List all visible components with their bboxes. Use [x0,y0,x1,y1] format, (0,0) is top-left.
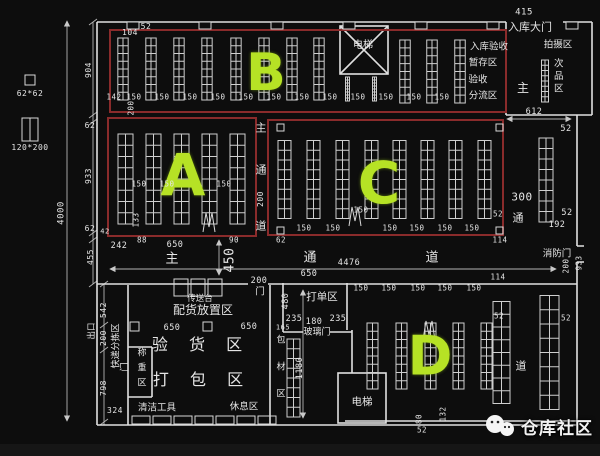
label-v-aisle-tong: 通 [256,165,267,176]
label-allocation-area: 配货放置区 [173,304,233,316]
legend-rack-size: 120*200 [11,144,48,152]
dim-52-d1: 52 [494,312,504,320]
dim-200-va: 200 [257,191,265,207]
label-weigh-door: 门 [122,362,131,371]
label-defective-area: 次品区 [552,58,562,96]
label-order-printing-area: 打单区 [306,292,338,303]
dim-142: 142 [106,93,121,101]
dim-200-left: 200 [100,330,108,346]
label-elevator-bottom: 电梯 [352,397,373,408]
c-150-1: 150 [296,224,311,232]
dim-165: 165 [276,325,290,332]
b-150-10: 150 [378,93,393,101]
dim-114-c: 114 [492,236,507,244]
dim-324: 324 [107,407,123,415]
dim-192: 192 [549,221,566,230]
dim-798: 798 [100,380,108,396]
label-weighing-area: 称重区 [136,348,145,393]
dim-88: 88 [137,236,147,244]
label-door-main: 门 [255,287,265,297]
dim-933-r: 933 [575,255,583,270]
label-elevator-top: 电梯 [353,41,373,51]
label-right-aisle-tong: 通 [513,213,524,224]
watermark-text: 仓库社区 [521,414,593,439]
label-main-aisle-dao: 道 [425,252,438,265]
label-v-aisle-dao: 道 [256,221,267,232]
watermark: 仓库社区 [484,413,593,439]
c-150-2: 150 [325,224,340,232]
dim-650-b2: 650 [241,323,258,332]
label-layer: 62*62120*2004000904629336245554220079832… [0,0,600,456]
label-main-top: 主 [517,82,529,94]
label-photo-area: 拍摄区 [544,40,573,50]
label-staging-area: 暂存区 [469,58,498,68]
dim-52-r1: 52 [560,125,571,134]
c-150-3: 150 [353,206,368,214]
dim-300: 300 [511,192,532,203]
label-inspection: 验收 [468,75,487,85]
b-150-8: 150 [322,93,337,101]
dim-242: 242 [111,242,128,251]
dim-133: 133 [132,212,140,227]
label-right-aisle-dao: 道 [516,361,527,372]
d-150-3: 150 [410,284,425,292]
dim-612: 612 [526,108,543,117]
label-cleaning-tools: 清洁工具 [138,403,176,413]
dim-235-2: 235 [330,315,347,324]
dim-235-1: 235 [286,315,303,324]
dim-52-d3: 52 [417,426,427,434]
dim-180: 180 [306,318,323,327]
c-150-4: 150 [382,224,397,232]
dim-200-r: 200 [562,258,570,273]
a-150-1: 150 [131,180,146,188]
b-150-2: 150 [154,93,169,101]
label-main-aisle-zhu: 主 [165,253,178,266]
dim-933: 933 [85,168,93,184]
b-150-12: 150 [434,93,449,101]
wechat-icon [484,413,518,439]
label-v-aisle-zhu: 主 [256,123,267,134]
label-glass-door: 玻璃门 [303,329,330,338]
b-150-5: 150 [238,93,253,101]
b-150-4: 150 [210,93,225,101]
dim-104: 104 [122,29,138,37]
dim-62-3: 62 [276,236,286,244]
dim-80: 80 [415,414,423,424]
b-150-9: 150 [350,93,365,101]
label-main-aisle-tong: 通 [303,252,316,265]
dim-42: 42 [100,229,109,236]
d-150-2: 150 [381,284,396,292]
dim-4476: 4476 [338,259,360,268]
dim-542: 542 [100,302,108,318]
dim-52-r2: 52 [561,209,572,218]
dim-52-top: 52 [141,23,152,31]
dim-415: 415 [515,9,533,18]
dim-455: 455 [87,249,95,265]
c-52: 52 [493,210,503,218]
label-distribution-area: 分流区 [469,91,498,101]
dim-650-b1: 650 [164,324,181,333]
b-150-3: 150 [182,93,197,101]
label-packing-area: 打 包 区 [153,372,251,388]
dim-90: 90 [229,236,239,244]
a-150-3: 150 [216,180,231,188]
c-150-7: 150 [464,224,479,232]
legend-pillar-size: 62*62 [17,90,44,98]
dim-200-door: 200 [251,277,268,286]
warehouse-floorplan: A B C D 62*62120*20040009046293362455542… [0,0,600,456]
d-150-5: 150 [466,284,481,292]
b-150-11: 150 [406,93,421,101]
dim-132: 132 [439,406,447,421]
b-150-6: 150 [266,93,281,101]
dim-52-d2: 52 [561,314,571,322]
dim-904: 904 [85,62,93,78]
a-150-2: 150 [159,180,174,188]
d-150-1: 150 [353,284,368,292]
b-150-7: 150 [294,93,309,101]
dim-114-d: 114 [490,273,505,281]
dim-62-1: 62 [85,122,96,130]
dim-200-ba: 200 [127,100,135,115]
dim-450: 450 [224,248,237,273]
label-conveyor: 传送台 [187,295,213,304]
dim-62-2: 62 [85,225,96,233]
label-inbound-gate: 入库大门 [508,22,552,33]
c-150-6: 150 [437,224,452,232]
label-goods-inspection-area: 验 货 区 [152,337,250,353]
label-rest-area: 休息区 [230,402,259,412]
d-150-4: 150 [437,284,452,292]
dim-650-c: 650 [301,270,318,279]
dim-1180: 1180 [296,357,305,379]
label-packing-material-area: 包材区 [275,335,284,416]
label-inbound-inspection: 入库验收 [470,42,508,52]
dim-480: 480 [282,293,291,310]
dim-650-a: 650 [167,241,184,250]
label-exit: 出口 [88,322,97,339]
c-150-5: 150 [409,224,424,232]
label-fire-door-right: 消防门 [543,249,572,259]
dim-4000: 4000 [58,201,67,225]
